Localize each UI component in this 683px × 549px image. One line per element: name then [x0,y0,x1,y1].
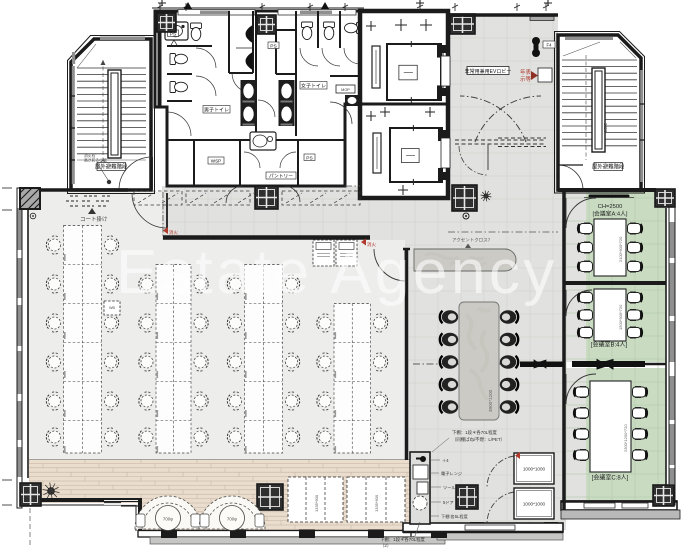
svg-text:1000*1000: 1000*1000 [523,467,546,472]
svg-text:[会議室B:4人]: [会議室B:4人] [591,341,628,349]
svg-text:（同棚ばね/不燃：L/PET）: （同棚ばね/不燃：L/PET） [452,436,505,443]
svg-text:下棚：1段＊各70L程度: 下棚：1段＊各70L程度 [380,536,426,543]
svg-text:F4: F4 [547,43,553,48]
svg-text:700φ: 700φ [163,517,173,522]
svg-text:WB: WB [109,306,115,310]
svg-text:PS: PS [306,155,312,161]
svg-text:MOP: MOP [341,88,350,92]
svg-text:示等: 示等 [520,75,532,83]
svg-text:1500*900*720: 1500*900*720 [618,304,623,330]
svg-text:女子トイレ: 女子トイレ [301,82,326,89]
svg-text:700φ: 700φ [227,517,237,522]
svg-text:CH=2500: CH=2500 [598,204,623,210]
svg-text:[会議室C:8人]: [会議室C:8人] [592,474,629,482]
svg-text:下棚:各5L程度: 下棚:各5L程度 [441,513,469,520]
svg-text:屋外避難階段: 屋外避難階段 [95,163,128,171]
svg-text:下棚：1段＊各70L程度: 下棚：1段＊各70L程度 [452,429,498,436]
svg-text:消火栓: 消火栓 [84,153,96,158]
svg-text:パントリー: パントリー [269,174,293,180]
svg-text:（2）: （2） [380,543,391,548]
svg-text:1335*600: 1335*600 [314,494,319,512]
svg-text:電子レンジ: 電子レンジ [441,470,462,477]
svg-text:3900*1200: 3900*1200 [488,389,493,412]
svg-text:Estate Agency: Estate Agency [116,238,558,307]
svg-text:WSP: WSP [211,159,221,164]
svg-text:2200: 2200 [603,123,608,133]
svg-text:ツール: ツール [443,485,456,490]
svg-text:消火: 消火 [169,229,178,236]
svg-text:2300*1200*720: 2300*1200*720 [623,424,628,452]
svg-text:高さ彩る小物: 高さ彩る小物 [84,158,107,163]
svg-text:非常用兼用EVロビー: 非常用兼用EVロビー [465,68,512,75]
svg-text:男子トイレ: 男子トイレ [204,106,229,113]
svg-text:1335*600: 1335*600 [374,494,379,512]
svg-text:[会議室A:4人]: [会議室A:4人] [592,210,627,218]
svg-text:＋4: ＋4 [442,458,449,463]
svg-text:年表: 年表 [520,68,532,76]
svg-text:屋外避難階段: 屋外避難階段 [592,163,625,171]
svg-text:PS: PS [270,43,276,49]
svg-text:コート掛け: コート掛け [80,215,108,223]
svg-text:2100*600*720: 2100*600*720 [618,236,623,262]
svg-text:1000*1000: 1000*1000 [523,502,546,507]
